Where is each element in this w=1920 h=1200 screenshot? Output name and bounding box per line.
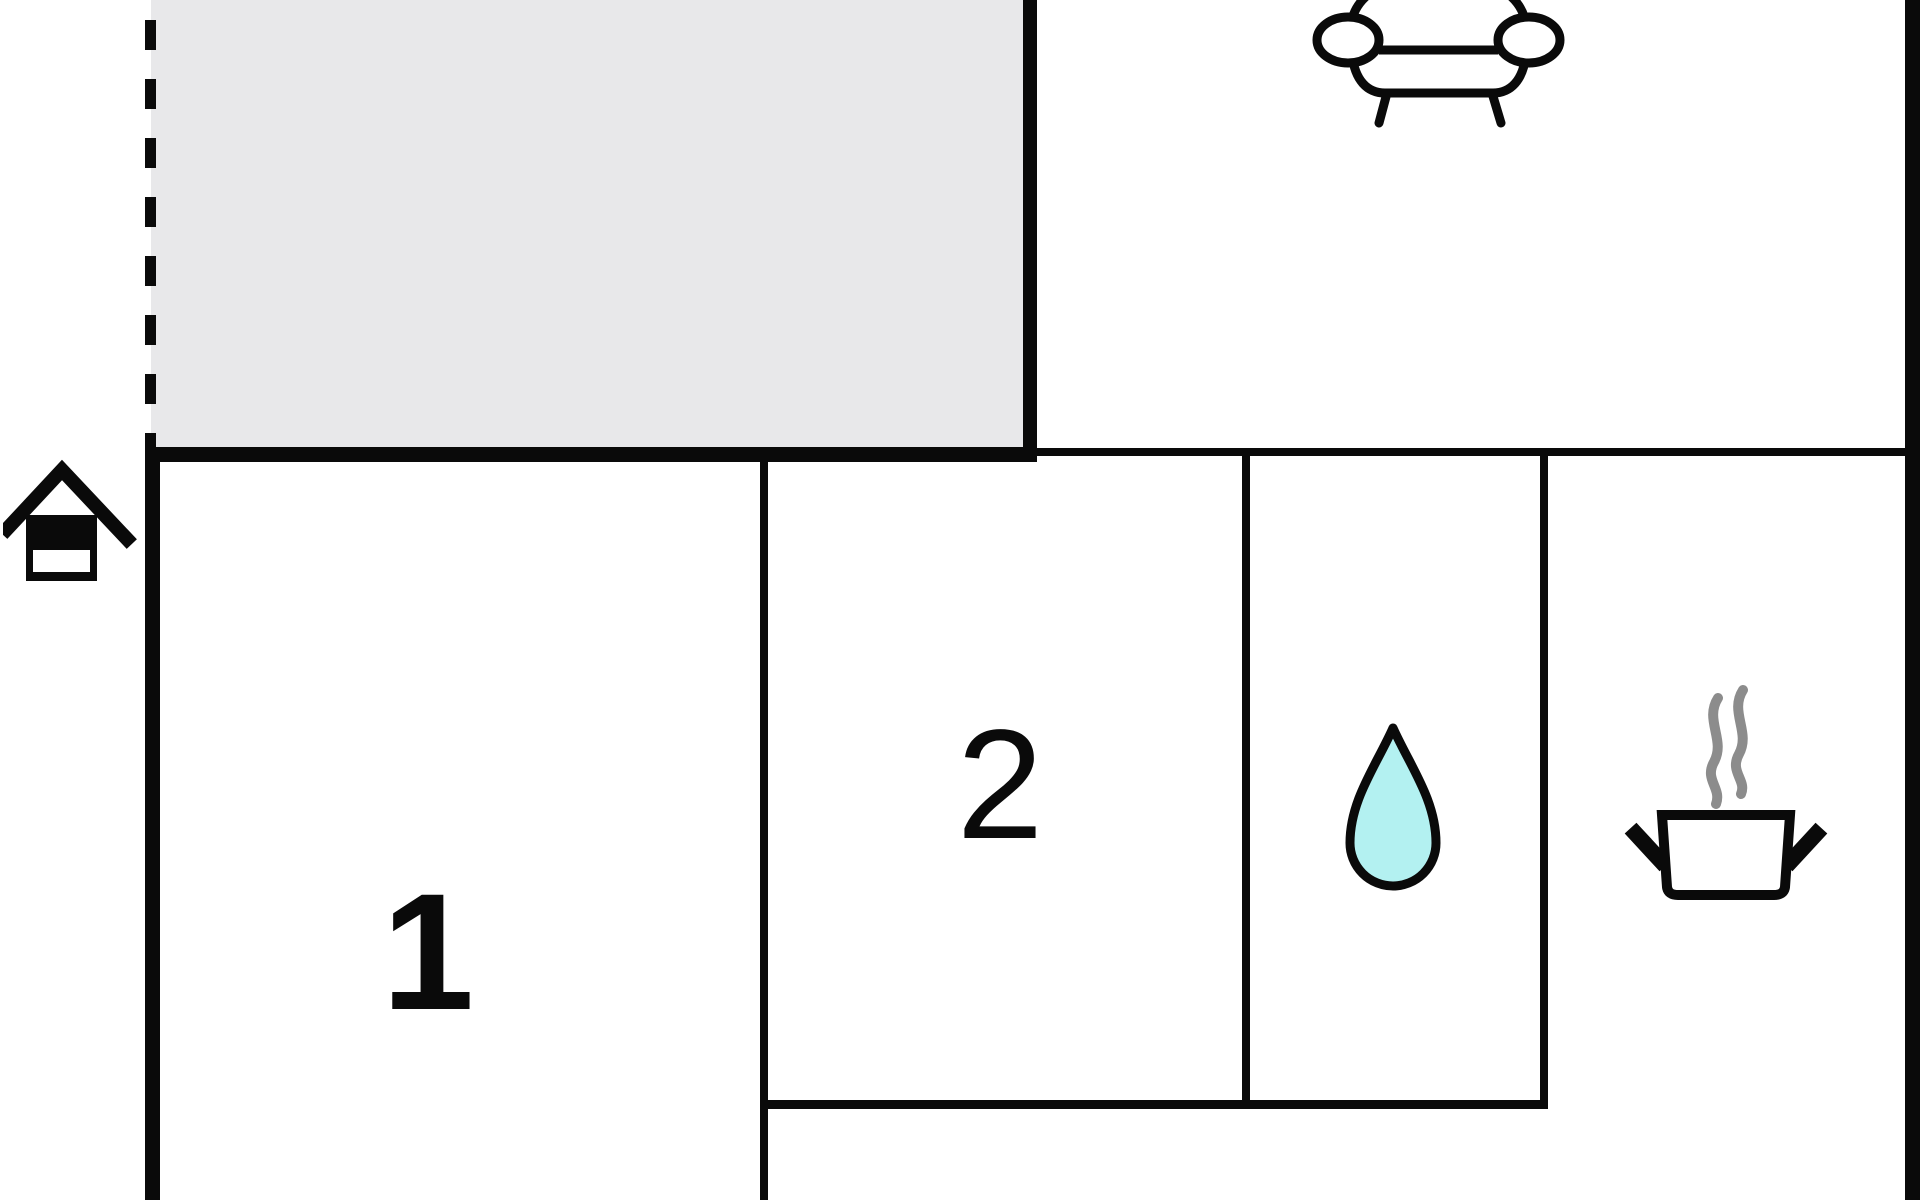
floor-plan: 1 2	[0, 0, 1920, 1200]
room-2-label: 2	[875, 700, 1125, 870]
room-1-label: 1	[303, 868, 553, 1038]
wall-left-outer	[145, 447, 160, 1200]
steam-left	[1711, 698, 1718, 804]
wall-terrace-bottom	[145, 447, 1037, 462]
sofa-icon	[1295, 0, 1565, 130]
terrace-area	[151, 0, 1023, 447]
wall-right-outer	[1905, 0, 1920, 1200]
wall-terrace-right	[1023, 0, 1037, 462]
steam-right	[1736, 690, 1743, 794]
wall-room1-room2	[760, 458, 768, 1200]
wall-room2-bathroom	[1242, 454, 1250, 1108]
water-drop-icon	[1342, 718, 1447, 898]
wall-north-interior	[1037, 448, 1905, 456]
wall-bathroom-kitchen	[1540, 454, 1548, 1108]
cooking-pot-icon	[1622, 682, 1832, 907]
house-icon	[3, 453, 143, 593]
wall-south-interior	[760, 1100, 1548, 1109]
terrace-dashed-boundary	[145, 20, 156, 447]
